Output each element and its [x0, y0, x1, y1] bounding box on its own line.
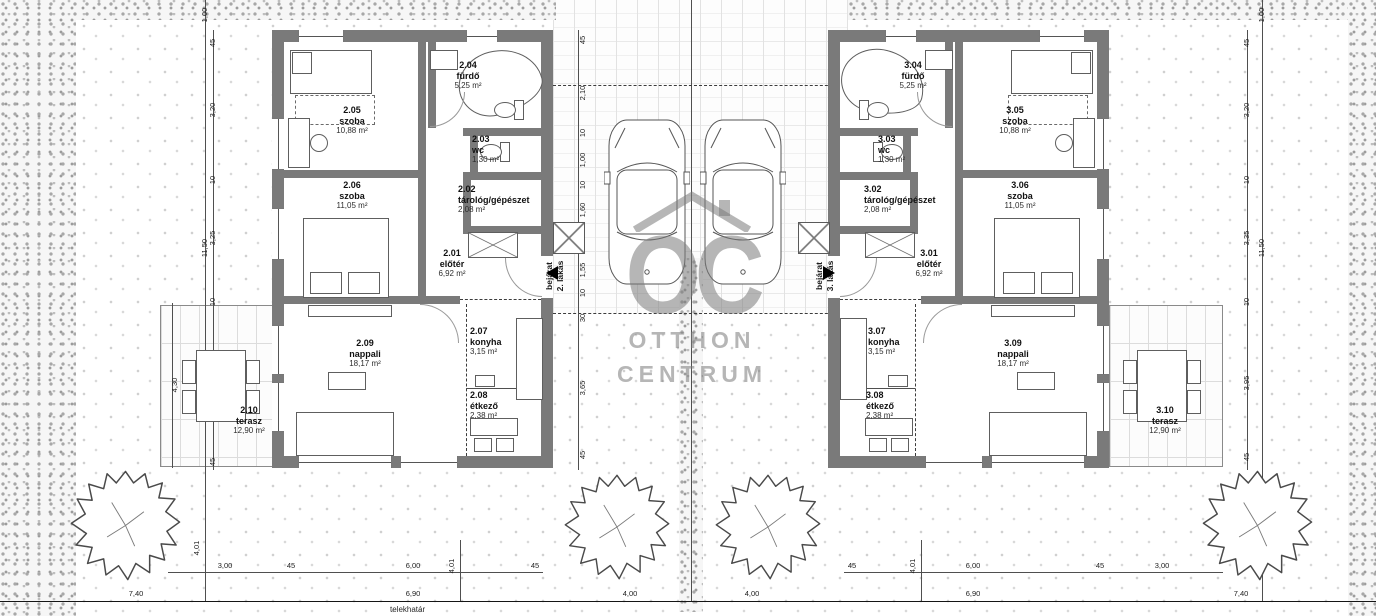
dim-label: 45 [835, 561, 869, 571]
dim-label: 45 [578, 438, 588, 472]
car-top-view-right [700, 112, 786, 292]
dim-label: 4,00 [613, 589, 647, 599]
room-label-3-07: 3.07 konyha 3,15 m² [868, 326, 938, 357]
dim-label: 45 [274, 561, 308, 571]
dim-label: 6,90 [396, 589, 430, 599]
kitchen-counter [840, 318, 867, 400]
coffee-table [328, 372, 366, 390]
tree [713, 472, 823, 582]
dim-label: 10 [208, 163, 218, 197]
toilet-bowl [494, 102, 516, 118]
dim-label: 11,50 [1257, 231, 1267, 265]
chair [182, 360, 196, 384]
room-label-2-02: 2.02 tárológ/gépészet 2,08 m² [458, 184, 553, 215]
plot-boundary-label: telekhatár [390, 605, 425, 614]
room-label-3-05: 3.05 szoba 10,88 m² [970, 105, 1060, 136]
dim-label: 4,01 [447, 549, 457, 583]
dim-label: 7,40 [119, 589, 153, 599]
pillow [1071, 52, 1091, 74]
window [925, 456, 983, 468]
dim-label: 4,30 [170, 368, 180, 402]
wall-bedroom-corridor-lower [418, 178, 426, 303]
tree [1200, 468, 1315, 583]
window [1097, 325, 1109, 375]
pillow [1041, 272, 1073, 294]
pillow [1003, 272, 1035, 294]
window [298, 30, 344, 42]
dim-total-left [205, 0, 206, 601]
dim-label: 4,01 [908, 549, 918, 583]
room-label-2-03: 2.03 wc 1,30 m² [472, 134, 532, 165]
dim-label: 2,10 [578, 76, 588, 110]
desk [1073, 118, 1095, 168]
room-label-2-01: 2.01 előtér 6,92 m² [407, 248, 497, 279]
window [272, 325, 284, 375]
dim-label: 6,00 [956, 561, 990, 571]
wall-wc-storage [463, 172, 541, 180]
entrance-arrow-right-icon [823, 266, 835, 280]
room-label-2-07: 2.07 konyha 3,15 m² [470, 326, 540, 357]
floor-plan-canvas: 45 2,10 10 1,00 10 1,60 10 1,55 10 30 3,… [0, 0, 1376, 616]
dim-label: 6,00 [396, 561, 430, 571]
wall-wc-storage [840, 172, 918, 180]
pillow [310, 272, 342, 294]
chair [869, 438, 887, 452]
house-left-wall-east-upper [541, 30, 553, 256]
front-depth-line-right [921, 540, 922, 601]
dim-label: 10 [208, 285, 218, 319]
dim-bottom-right-line [844, 572, 1223, 573]
house-right-wall-west-lower [828, 298, 840, 468]
room-label-3-09: 3.09 nappali 18,17 m² [968, 338, 1058, 369]
dim-label: 3,20 [1242, 93, 1252, 127]
window [885, 30, 917, 42]
room-label-2-04: 2.04 fürdő 5,25 m² [423, 60, 513, 91]
window [1097, 382, 1109, 432]
tree [562, 472, 672, 582]
dim-label: 4,01 [192, 531, 202, 565]
kitchen-sink [888, 375, 908, 387]
hedge-top-right [848, 0, 1376, 20]
plot-division-line [691, 0, 692, 601]
chair [1055, 134, 1073, 152]
dim-label: 45 [518, 561, 552, 571]
coffee-table [1017, 372, 1055, 390]
window [1097, 118, 1109, 170]
opening-dashed [840, 299, 921, 300]
dining-table [865, 418, 913, 436]
car-top-view-left [604, 112, 690, 292]
dim-bottom-left-line [168, 572, 543, 573]
room-label-3-03: 3.03 wc 1,30 m² [878, 134, 938, 165]
chair [496, 438, 514, 452]
kitchen-sink [475, 375, 495, 387]
setback-dashed-line-top [553, 85, 848, 86]
dim-label: 45 [208, 445, 218, 479]
dim-label: 45 [578, 23, 588, 57]
dim-label: 1,00 [200, 0, 210, 32]
sofa [296, 412, 394, 456]
kitchen-dashed-partition [466, 304, 467, 456]
room-label-3-08: 3.08 étkező 2,38 m² [866, 390, 936, 421]
front-depth-line-left [460, 540, 461, 601]
tv-console [991, 305, 1075, 317]
dim-label: 1,00 [1257, 0, 1267, 32]
window [1039, 30, 1085, 42]
dining-table [470, 418, 518, 436]
dim-label: 45 [1242, 26, 1252, 60]
dim-label: 3,65 [578, 371, 588, 405]
dim-label: 3,35 [1242, 221, 1252, 255]
tv-console [308, 305, 392, 317]
plot-boundary-line [0, 601, 1376, 602]
tree [68, 468, 183, 583]
dim-label: 7,40 [1224, 589, 1258, 599]
chair [246, 360, 260, 384]
dim-label: 6,90 [956, 589, 990, 599]
dim-label: 10 [1242, 163, 1252, 197]
window [400, 456, 458, 468]
dim-label: 3,00 [1145, 561, 1179, 571]
hedge-right [1348, 0, 1376, 616]
sofa [989, 412, 1087, 456]
window [1097, 208, 1109, 260]
room-label-3-10: 3.10 terasz 12,90 m² [1130, 405, 1200, 436]
room-label-2-06: 2.06 szoba 11,05 m² [307, 180, 397, 211]
room-label-3-06: 3.06 szoba 11,05 m² [975, 180, 1065, 211]
dim-label: 30 [578, 301, 588, 335]
room-label-2-05: 2.05 szoba 10,88 m² [307, 105, 397, 136]
room-label-3-02: 3.02 tárológ/gépészet 2,08 m² [864, 184, 959, 215]
chair [474, 438, 492, 452]
terrace-door [298, 456, 392, 468]
opening-dashed [460, 299, 541, 300]
toilet-bowl [867, 102, 889, 118]
entrance-arrow-left-icon [546, 266, 558, 280]
dim-label: 10 [1242, 285, 1252, 319]
room-label-3-01: 3.01 előtér 6,92 m² [884, 248, 974, 279]
window [272, 208, 284, 260]
dim-label: 4,00 [735, 589, 769, 599]
chair [182, 390, 196, 414]
hedge-top-left [0, 0, 556, 20]
chair [310, 134, 328, 152]
room-label-2-09: 2.09 nappali 18,17 m² [320, 338, 410, 369]
room-label-2-08: 2.08 étkező 2,38 m² [470, 390, 540, 421]
dim-label: 3,20 [208, 93, 218, 127]
window [272, 118, 284, 170]
dim-label: 3,95 [1242, 366, 1252, 400]
wall-bedrooms-divider [961, 170, 1097, 178]
chair [1187, 360, 1201, 384]
setback-dashed-line-bottom [553, 313, 848, 314]
pillow [348, 272, 380, 294]
chair [1123, 360, 1137, 384]
chair [891, 438, 909, 452]
wall-bedrooms-divider [284, 170, 420, 178]
room-label-3-04: 3.04 fürdő 5,25 m² [868, 60, 958, 91]
room-label-2-10: 2.10 terasz 12,90 m² [214, 405, 284, 436]
dim-label: 11,50 [200, 231, 210, 265]
dim-label: 45 [1083, 561, 1117, 571]
window [466, 30, 498, 42]
dim-label: 3,00 [208, 561, 242, 571]
hedge-left [0, 0, 76, 616]
terrace-door [991, 456, 1085, 468]
pillow [292, 52, 312, 74]
